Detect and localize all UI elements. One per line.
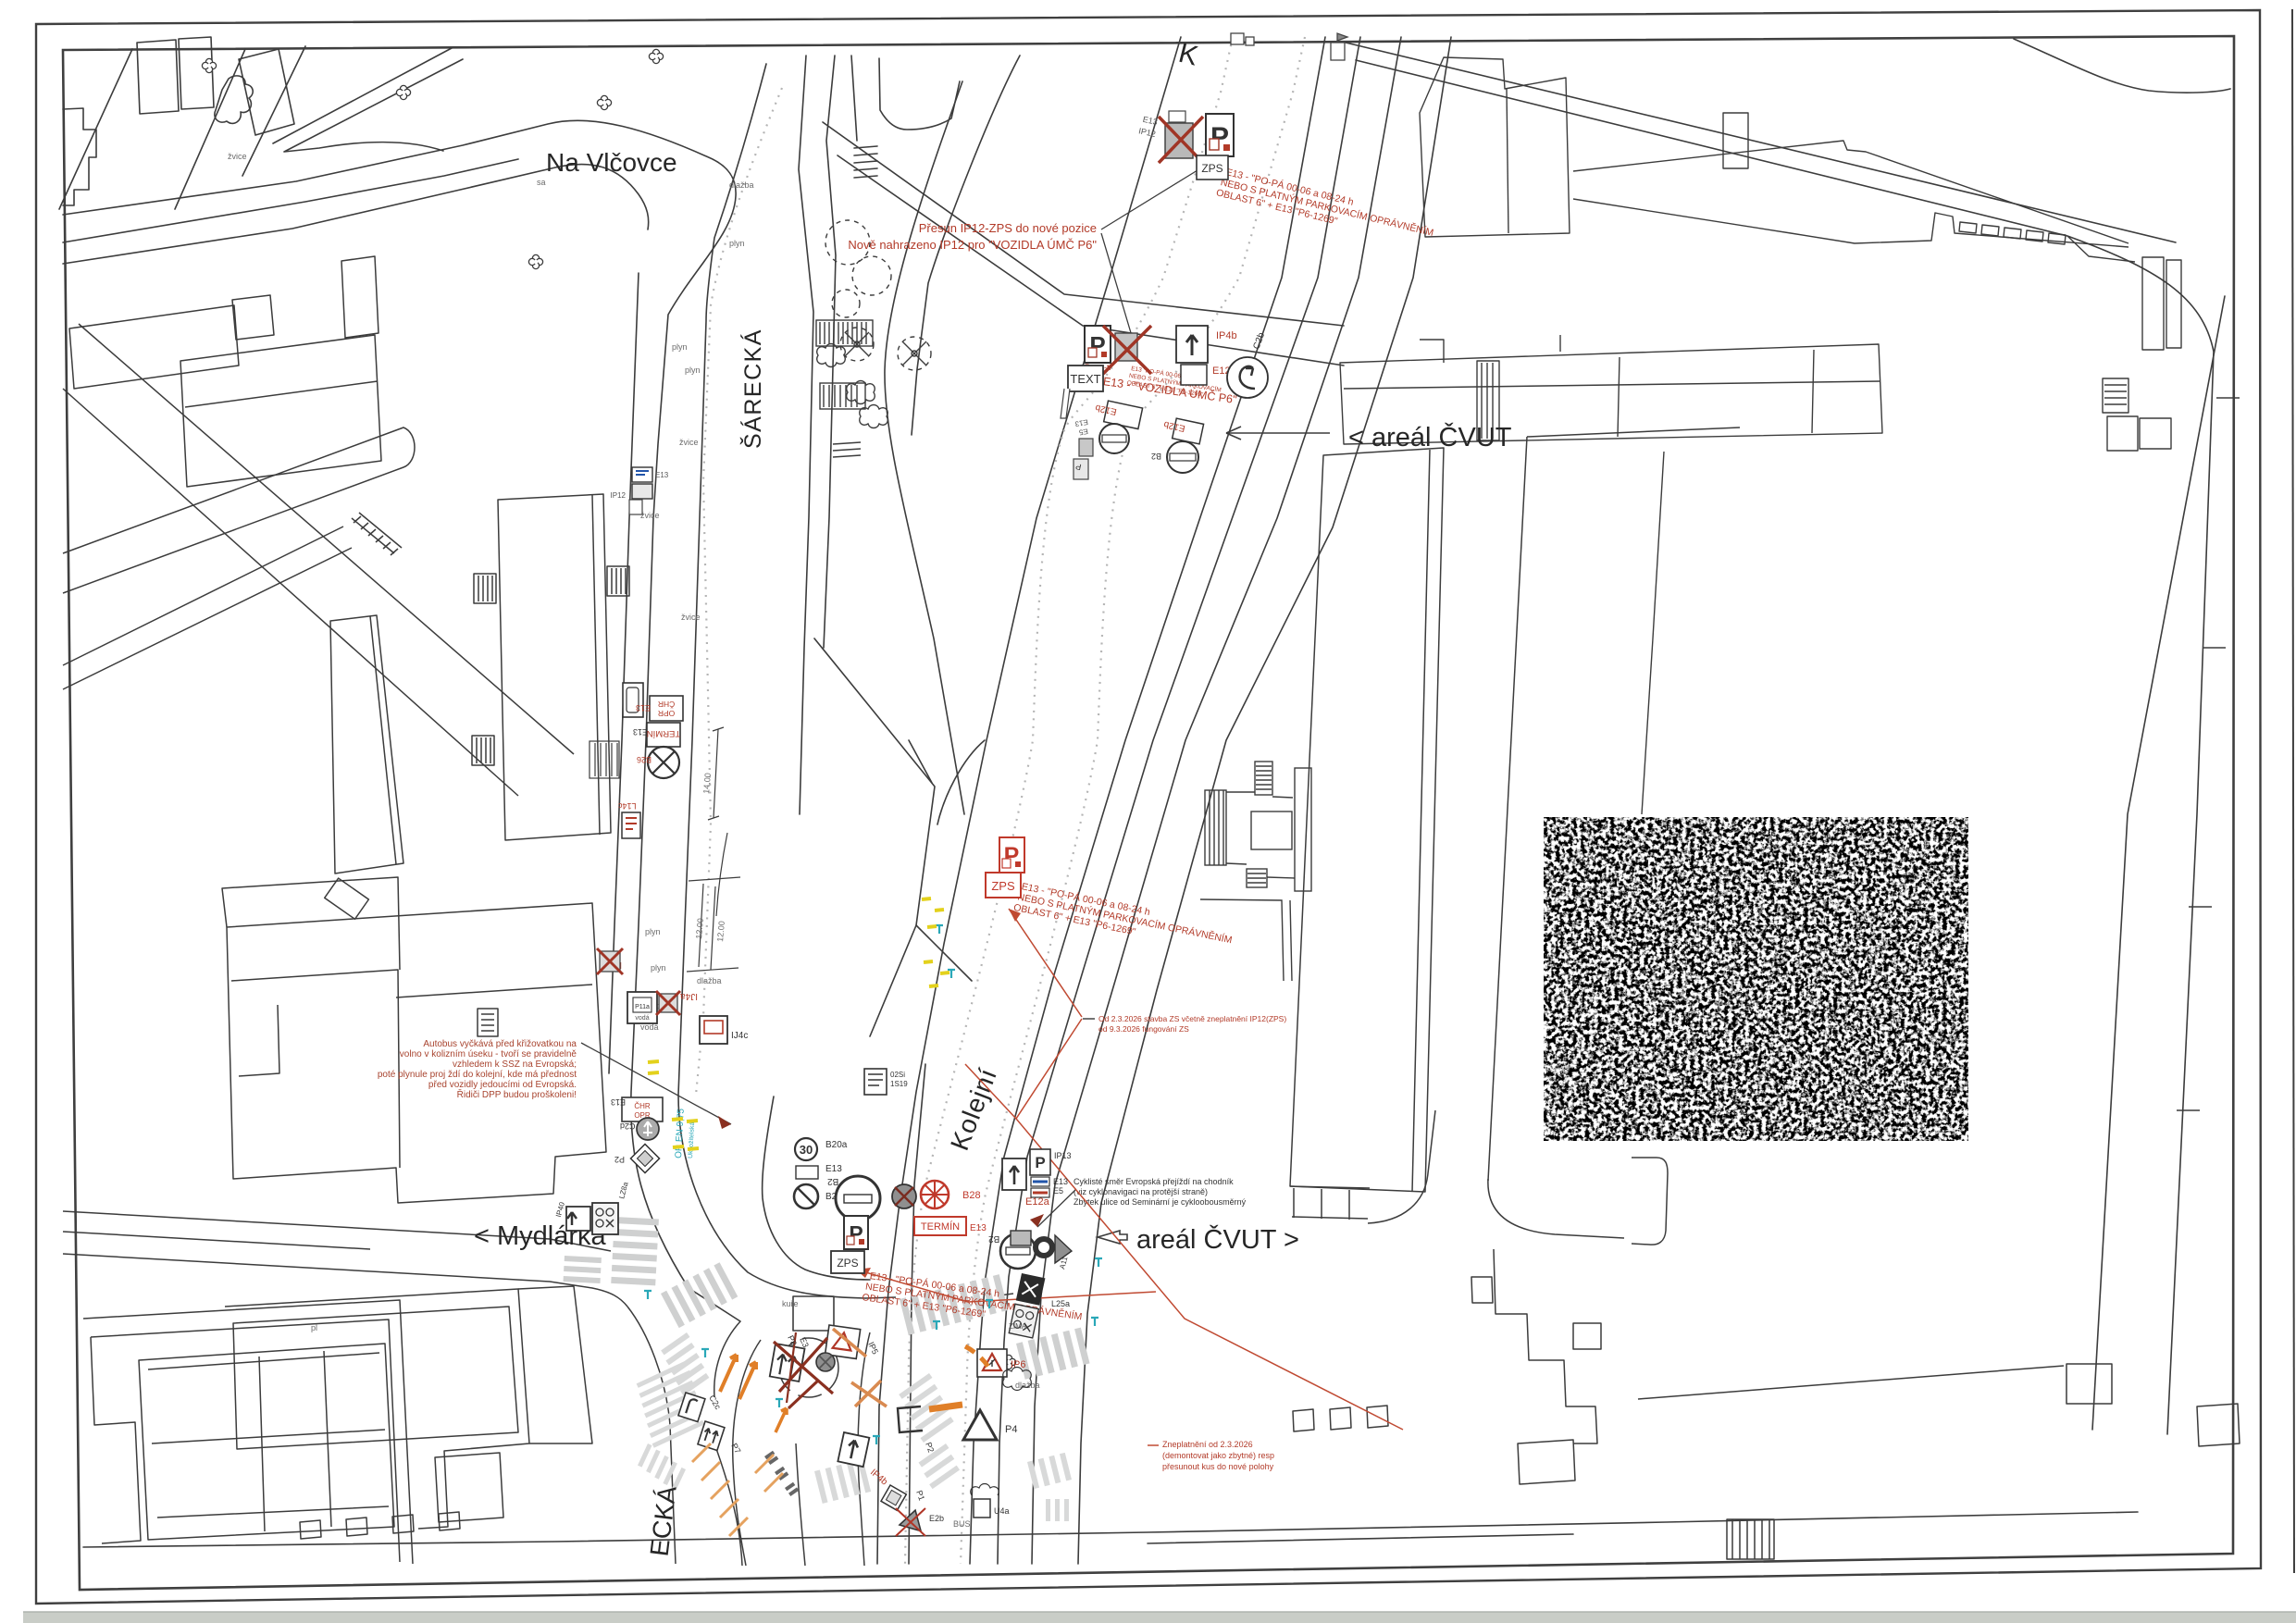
svg-text:12.00: 12.00: [715, 921, 726, 942]
svg-text:B26: B26: [637, 755, 652, 764]
svg-text:Autobus vyčkává před křižovatk: Autobus vyčkává před křižovatkou na: [423, 1039, 577, 1049]
svg-text:< areál ČVUT: < areál ČVUT: [1348, 421, 1512, 452]
svg-text:pl: pl: [311, 1323, 317, 1332]
svg-text:BUS: BUS: [953, 1519, 971, 1529]
svg-text:plyn: plyn: [729, 239, 745, 248]
svg-text:P11a: P11a: [635, 1004, 650, 1010]
svg-text:C2d: C2d: [620, 1121, 636, 1131]
svg-text:P2: P2: [614, 1155, 625, 1164]
svg-text:přesunout kus do nové polohy: přesunout kus do nové polohy: [1162, 1462, 1274, 1471]
svg-text:E13: E13: [970, 1223, 987, 1233]
svg-text:vodá: vodá: [635, 1015, 649, 1022]
svg-text:areál ČVUT >: areál ČVUT >: [1136, 1223, 1299, 1255]
svg-text:E13: E13: [1053, 1177, 1068, 1186]
svg-text:TEXT: TEXT: [1070, 372, 1100, 386]
svg-text:02Si: 02Si: [890, 1071, 905, 1079]
svg-text:kuře: kuře: [782, 1299, 799, 1308]
svg-text:Na Vlčovce: Na Vlčovce: [546, 148, 677, 177]
svg-text:plyn: plyn: [651, 963, 666, 973]
svg-text:E13: E13: [633, 727, 648, 737]
svg-text:žvice: žvice: [228, 152, 247, 161]
svg-text:TERMÍN: TERMÍN: [647, 728, 681, 738]
svg-text:IJ4c: IJ4c: [731, 1031, 748, 1041]
svg-text:14,00: 14,00: [701, 773, 713, 794]
svg-text:Přesun IP12-ZPS do nové pozice: Přesun IP12-ZPS do nové pozice: [919, 221, 1097, 235]
svg-text:OPR: OPR: [658, 709, 675, 718]
svg-text:před vozidly jedoucími od Evro: před vozidly jedoucími od Evropská.: [428, 1080, 577, 1090]
svg-text:Cyklisté směr Evropská přejížd: Cyklisté směr Evropská přejíždí na chodn…: [1074, 1177, 1234, 1186]
svg-text:IP13: IP13: [1054, 1151, 1072, 1160]
svg-text:E13: E13: [655, 471, 669, 479]
svg-text:ZPS: ZPS: [991, 879, 1015, 893]
svg-text:ZPS: ZPS: [837, 1257, 858, 1270]
svg-text:Řidiči DPP budou proškoleni!: Řidiči DPP budou proškoleni!: [457, 1088, 577, 1100]
svg-text:IP12: IP12: [611, 491, 627, 500]
svg-text:12.00: 12.00: [694, 918, 705, 939]
svg-text:P: P: [1035, 1154, 1045, 1171]
svg-text:B2: B2: [827, 1176, 839, 1186]
svg-text:plyn: plyn: [672, 342, 688, 352]
svg-text:E13: E13: [825, 1164, 842, 1174]
svg-text:žvice: žvice: [679, 438, 699, 447]
svg-text:ČHR: ČHR: [634, 1102, 651, 1110]
svg-text:Nově nahrazeno IP12 pro "VOZID: Nově nahrazeno IP12 pro "VOZIDLA ÚMČ P6": [848, 238, 1097, 252]
svg-text:1S19: 1S19: [890, 1080, 908, 1088]
svg-text:volno v kolizním úseku - tvoří: volno v kolizním úseku - tvoří se pravid…: [400, 1049, 577, 1059]
svg-text:ZPS: ZPS: [1201, 162, 1222, 175]
svg-text:(viz cyklonavigaci na protější: (viz cyklonavigaci na protější straně): [1074, 1187, 1208, 1196]
svg-text:dlažba: dlažba: [697, 976, 722, 985]
svg-text:ZIMA: ZIMA: [1009, 1322, 1027, 1331]
svg-text:L25a: L25a: [1051, 1299, 1070, 1308]
svg-text:30: 30: [800, 1143, 813, 1157]
svg-text:P4: P4: [1005, 1424, 1017, 1435]
svg-text:E13: E13: [636, 703, 651, 712]
svg-text:(demontovat jako zbytné) resp: (demontovat jako zbytné) resp: [1162, 1451, 1274, 1460]
svg-text:žvice: žvice: [640, 511, 660, 520]
svg-text:B28: B28: [962, 1190, 981, 1201]
svg-text:dlažba: dlažba: [1015, 1381, 1040, 1390]
svg-text:B2: B2: [1151, 452, 1161, 461]
svg-text:sa: sa: [537, 178, 546, 187]
svg-text:U4a: U4a: [994, 1506, 1010, 1516]
svg-text:E2b: E2b: [929, 1514, 944, 1523]
svg-text:L14c: L14c: [618, 801, 637, 811]
svg-text:E12a: E12a: [1025, 1196, 1050, 1208]
svg-text:poté plynule proj ždí do kolej: poté plynule proj ždí do kolejní, kde má…: [378, 1070, 577, 1080]
svg-text:B2: B2: [988, 1233, 1000, 1244]
svg-text:od 9.3.2026 fungování ZS: od 9.3.2026 fungování ZS: [1098, 1024, 1189, 1034]
svg-text:vzhledem k SSZ na Evropská;: vzhledem k SSZ na Evropská;: [453, 1059, 577, 1070]
svg-text:TERMÍN: TERMÍN: [921, 1220, 960, 1233]
svg-text:ŠÁRECKÁ: ŠÁRECKÁ: [739, 328, 766, 449]
svg-text:B20a: B20a: [825, 1140, 848, 1150]
svg-text:Od 2.3.2026 stavba ZS včetně z: Od 2.3.2026 stavba ZS včetně zneplatnění…: [1098, 1014, 1286, 1023]
svg-text:E5: E5: [1053, 1186, 1063, 1196]
svg-text:plyn: plyn: [685, 365, 701, 375]
svg-text:dlažba: dlažba: [729, 180, 754, 190]
svg-text:IJ4a: IJ4a: [680, 991, 698, 1001]
svg-text:Zbytek ulice od Seminární je c: Zbytek ulice od Seminární je cykloobousm…: [1074, 1197, 1247, 1207]
svg-text:plyn: plyn: [645, 927, 661, 936]
svg-text:ČHR: ČHR: [658, 700, 675, 709]
svg-text:Zneplatnění od 2.3.2026: Zneplatnění od 2.3.2026: [1162, 1440, 1253, 1449]
svg-text:E13: E13: [611, 1097, 626, 1107]
svg-text:žvice: žvice: [681, 613, 701, 622]
svg-text:IP4b: IP4b: [1216, 330, 1237, 341]
